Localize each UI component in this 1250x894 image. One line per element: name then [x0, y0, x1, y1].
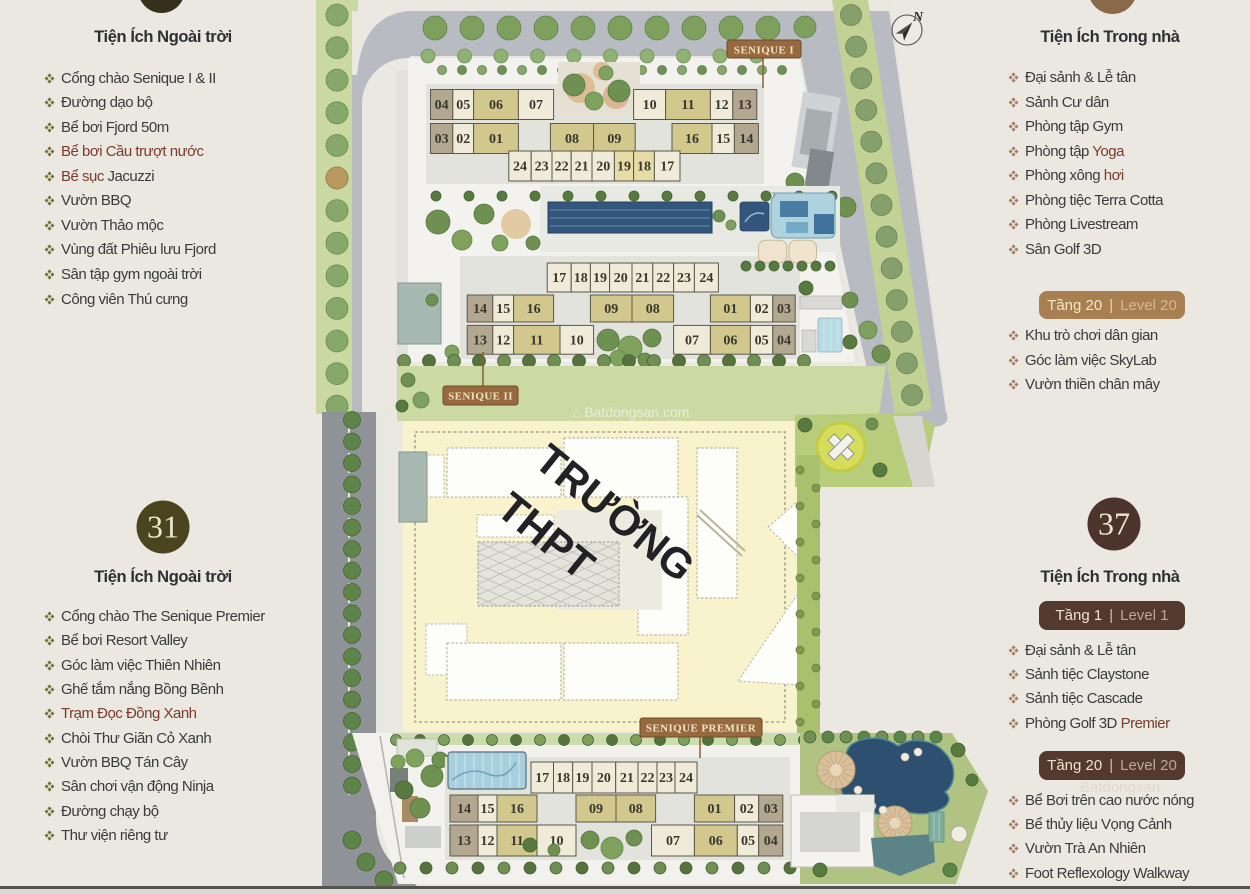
svg-text:20: 20	[597, 771, 611, 786]
svg-text:10: 10	[570, 333, 584, 348]
svg-text:13: 13	[738, 98, 752, 113]
svg-text:22: 22	[641, 771, 655, 786]
svg-text:07: 07	[529, 98, 543, 113]
svg-text:12: 12	[481, 834, 495, 849]
svg-text:13: 13	[473, 333, 487, 348]
svg-text:02: 02	[755, 302, 769, 317]
svg-text:01: 01	[489, 132, 503, 147]
svg-text:N: N	[912, 10, 924, 25]
svg-text:04: 04	[764, 834, 778, 849]
svg-text:17: 17	[660, 160, 674, 175]
svg-text:24: 24	[679, 771, 693, 786]
svg-text:20: 20	[596, 160, 610, 175]
svg-text:17: 17	[552, 271, 566, 286]
svg-text:05: 05	[456, 98, 470, 113]
svg-text:22: 22	[656, 271, 670, 286]
svg-text:24: 24	[513, 160, 527, 175]
svg-text:06: 06	[489, 98, 503, 113]
svg-text:14: 14	[739, 132, 753, 147]
svg-text:05: 05	[755, 333, 769, 348]
svg-text:18: 18	[556, 771, 570, 786]
svg-text:04: 04	[777, 333, 791, 348]
svg-text:18: 18	[574, 271, 588, 286]
svg-text:15: 15	[716, 132, 730, 147]
svg-text:08: 08	[565, 132, 579, 147]
svg-text:09: 09	[607, 132, 621, 147]
svg-text:10: 10	[643, 98, 657, 113]
svg-text:24: 24	[699, 271, 713, 286]
svg-text:02: 02	[740, 802, 754, 817]
svg-text:01: 01	[723, 302, 737, 317]
svg-text:07: 07	[666, 834, 680, 849]
svg-text:09: 09	[604, 302, 618, 317]
svg-text:08: 08	[629, 802, 643, 817]
svg-text:19: 19	[617, 160, 631, 175]
svg-text:03: 03	[777, 302, 791, 317]
svg-text:17: 17	[535, 771, 549, 786]
svg-text:06: 06	[709, 834, 723, 849]
svg-text:16: 16	[685, 132, 699, 147]
svg-text:23: 23	[535, 160, 549, 175]
svg-text:⌂ Batdongsan.com: ⌂ Batdongsan.com	[572, 404, 689, 420]
svg-text:21: 21	[575, 160, 589, 175]
svg-text:07: 07	[685, 333, 699, 348]
svg-text:11: 11	[530, 333, 543, 348]
svg-text:05: 05	[741, 834, 755, 849]
svg-text:15: 15	[481, 802, 495, 817]
svg-text:22: 22	[555, 160, 569, 175]
svg-text:16: 16	[527, 302, 541, 317]
svg-text:13: 13	[457, 834, 471, 849]
svg-text:08: 08	[646, 302, 660, 317]
svg-text:SENIQUE I: SENIQUE I	[734, 45, 794, 57]
svg-text:23: 23	[659, 771, 673, 786]
svg-text:15: 15	[496, 302, 510, 317]
svg-text:SENIQUE PREMIER: SENIQUE PREMIER	[646, 723, 757, 735]
svg-text:12: 12	[496, 333, 510, 348]
svg-text:09: 09	[589, 802, 603, 817]
svg-text:SENIQUE II: SENIQUE II	[448, 391, 513, 403]
svg-text:11: 11	[510, 834, 523, 849]
svg-text:03: 03	[435, 132, 449, 147]
svg-text:19: 19	[593, 271, 607, 286]
svg-text:11: 11	[681, 98, 694, 113]
svg-text:01: 01	[708, 802, 722, 817]
svg-text:21: 21	[635, 271, 649, 286]
svg-text:04: 04	[435, 98, 449, 113]
svg-text:23: 23	[677, 271, 691, 286]
svg-text:02: 02	[456, 132, 470, 147]
svg-text:06: 06	[723, 333, 737, 348]
svg-text:03: 03	[764, 802, 778, 817]
svg-text:14: 14	[457, 802, 471, 817]
svg-text:14: 14	[473, 302, 487, 317]
svg-text:12: 12	[715, 98, 729, 113]
svg-text:21: 21	[620, 771, 634, 786]
svg-text:16: 16	[510, 802, 524, 817]
svg-text:19: 19	[575, 771, 589, 786]
svg-text:18: 18	[637, 160, 651, 175]
svg-text:20: 20	[614, 271, 628, 286]
